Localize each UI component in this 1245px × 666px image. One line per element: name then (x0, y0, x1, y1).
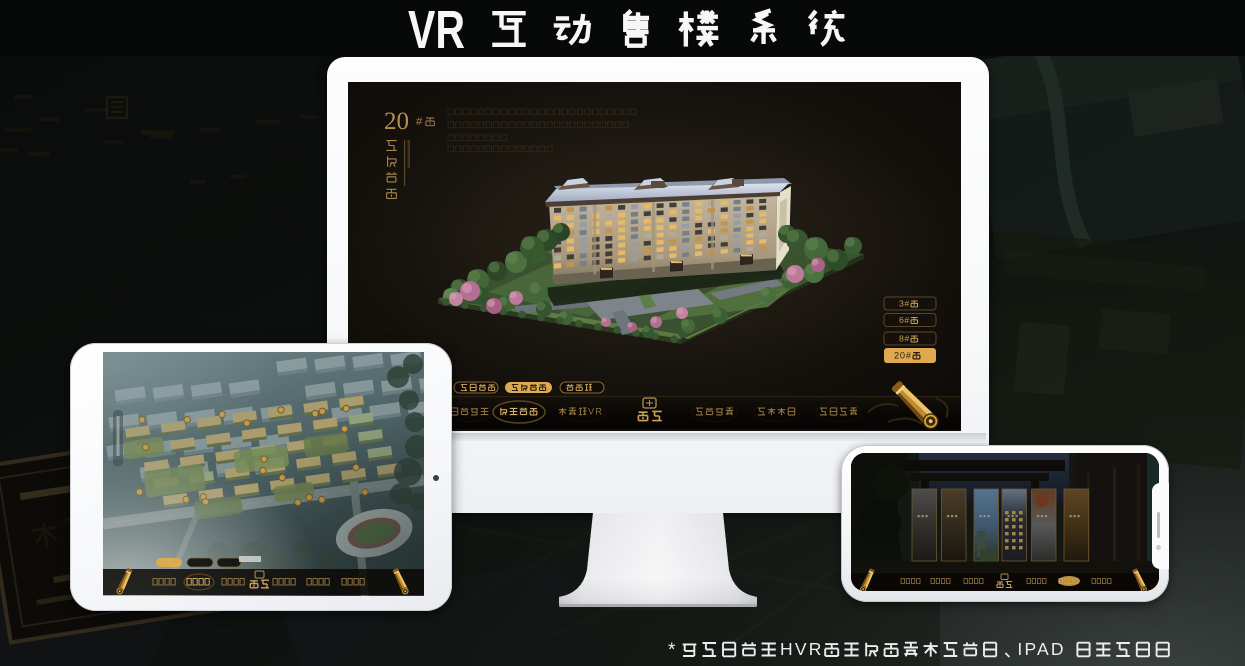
svg-text:#: # (416, 116, 424, 128)
svg-text:20: 20 (384, 108, 409, 135)
svg-text:8#: 8# (899, 334, 910, 344)
svg-text:VR: VR (408, 1, 465, 56)
svg-text:3#: 3# (899, 299, 910, 309)
svg-text:6#: 6# (899, 315, 910, 325)
svg-text:20#: 20# (894, 350, 912, 360)
svg-text:VR: VR (588, 406, 603, 416)
